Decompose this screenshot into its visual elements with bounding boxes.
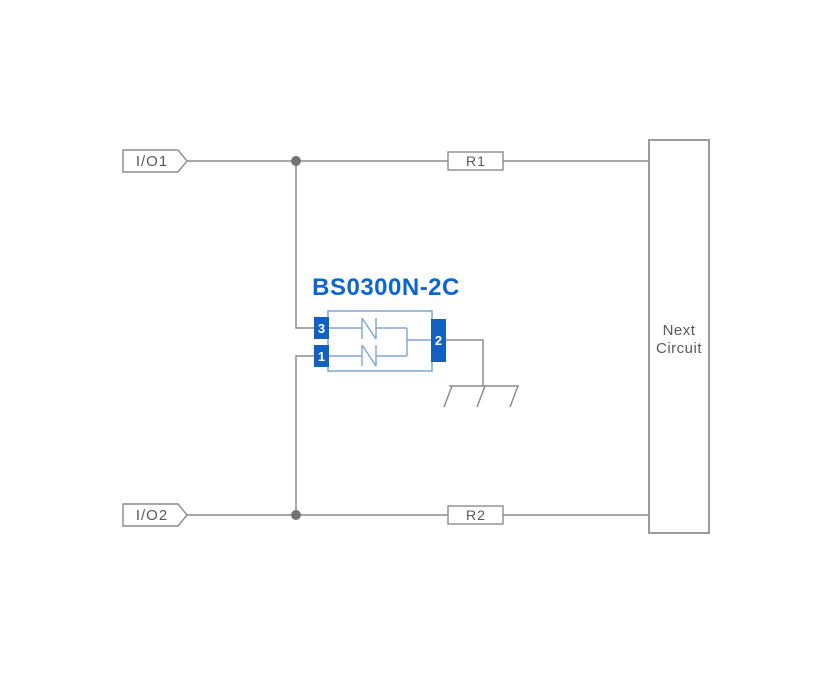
component-body <box>328 311 432 371</box>
wire-pin2-to-ground <box>446 340 483 386</box>
resistor-r2: R2 <box>448 506 503 524</box>
resistor-r1: R1 <box>448 152 503 170</box>
io1-label: I/O1 <box>136 153 168 170</box>
junction-dot-bottom <box>291 510 301 520</box>
circuit-diagram: I/O1 I/O2 R1 R2 BS0300N-2C <box>0 0 832 675</box>
ground-hatch-1 <box>444 386 452 407</box>
schematic-svg: I/O1 I/O2 R1 R2 BS0300N-2C <box>0 0 832 675</box>
next-circuit-label-line2: Circuit <box>656 340 702 357</box>
ground-hatch-3 <box>510 386 518 407</box>
wire-junction1-to-pin3 <box>296 161 314 328</box>
r1-label: R1 <box>466 153 486 169</box>
pin-1: 1 <box>314 345 329 367</box>
io1-connector: I/O1 <box>123 150 187 172</box>
next-circuit-block: Next Circuit <box>649 140 709 533</box>
wire-pin1-to-junction2 <box>296 356 314 515</box>
pin2-label: 2 <box>435 333 442 348</box>
pin-3: 3 <box>314 317 329 339</box>
io2-connector: I/O2 <box>123 504 187 526</box>
pin1-label: 1 <box>318 349 325 364</box>
component-title: BS0300N-2C <box>312 274 460 301</box>
r2-label: R2 <box>466 507 486 523</box>
ground-symbol <box>444 386 519 407</box>
pin-2: 2 <box>431 319 446 362</box>
junction-dot-top <box>291 156 301 166</box>
pin3-label: 3 <box>318 321 325 336</box>
io2-label: I/O2 <box>136 507 168 524</box>
tvs-component: BS0300N-2C 3 <box>312 274 460 371</box>
next-circuit-label-line1: Next <box>663 322 696 339</box>
ground-hatch-2 <box>477 386 485 407</box>
